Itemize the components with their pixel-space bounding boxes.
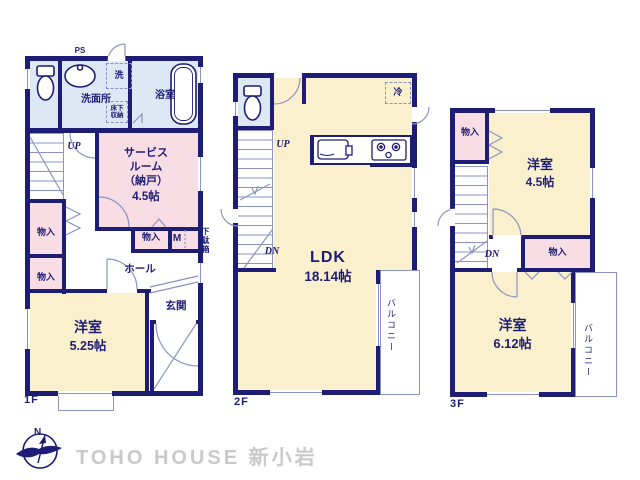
bathroom-label: 浴室 <box>137 90 193 103</box>
wall <box>455 160 489 164</box>
balcony-3f <box>575 272 617 397</box>
service-room-label: サービス ルーム （納戸） <box>100 147 192 188</box>
floor-3f-label: 3F <box>450 398 474 412</box>
service-room-size: 4.5帖 <box>100 190 192 204</box>
window <box>495 108 550 113</box>
bedroom-a-label: 洋室 <box>510 157 570 173</box>
compass-north-label: N <box>34 427 41 438</box>
door-gap <box>274 73 302 78</box>
dn-label: DN <box>478 249 506 262</box>
ldk-label: LDK <box>278 248 378 268</box>
bedroom-b-size: 6.12帖 <box>470 336 555 352</box>
stairs-1f <box>30 133 63 199</box>
entrance-door-arc <box>156 324 198 366</box>
sliding-door <box>376 284 380 346</box>
toilet-door-arc <box>274 78 300 104</box>
door-gap <box>412 107 417 122</box>
ldk-size: 18.14帖 <box>268 269 388 286</box>
kitchen-counter <box>310 135 412 165</box>
balcony-label-2f: バルコニー <box>386 280 395 370</box>
shoe-cabinet-label: 下駄箱 <box>201 219 209 261</box>
closet-b-3f-label: 物入 <box>530 247 585 258</box>
ps-label: PS <box>68 46 92 56</box>
window <box>270 390 322 395</box>
door-gap <box>156 320 196 324</box>
wall <box>30 254 66 258</box>
window <box>198 157 203 191</box>
refrigerator-box: 冷 <box>385 82 411 104</box>
up-label: UP <box>270 139 296 152</box>
wall <box>455 268 590 272</box>
washer-label: 洗 <box>114 70 123 81</box>
floor-1f-label: 1F <box>24 394 48 408</box>
wall <box>133 249 198 253</box>
closet-b-label: 物入 <box>30 272 62 283</box>
closet-a-label: 物入 <box>30 227 62 238</box>
window <box>590 168 595 198</box>
window <box>198 67 203 83</box>
wall <box>58 61 62 128</box>
wall <box>62 199 66 294</box>
entrance-step <box>58 396 114 411</box>
underfloor-storage-label: 床下 収納 <box>111 105 124 120</box>
closet-fold-door <box>66 221 80 235</box>
wall <box>95 133 99 231</box>
door-gap <box>107 289 137 293</box>
door-gap <box>492 268 517 272</box>
washer-box: 洗 <box>106 63 132 89</box>
door-gap <box>450 209 455 226</box>
closet-a-3f-label: 物入 <box>455 127 485 138</box>
balcony-label-3f: バルコニー <box>583 305 592 395</box>
brand-text: TOHO HOUSE 新小岩 <box>76 441 318 470</box>
closet-fold-door <box>66 207 80 221</box>
m-label: M <box>171 233 183 246</box>
wall <box>270 78 274 130</box>
wall <box>150 320 154 391</box>
washroom-label: 洗面所 <box>68 94 124 107</box>
compass-bird-shape <box>16 446 62 458</box>
floor-1f: 洗 床下 収納 PS 洗面所 浴室 UP サービス ルーム （納戸） 4.5帖 … <box>25 56 203 396</box>
up-label: UP <box>61 141 87 154</box>
entrance-step-line <box>150 276 198 287</box>
window <box>25 309 30 349</box>
window <box>25 69 30 89</box>
refrigerator-label: 冷 <box>393 87 402 98</box>
wall <box>30 128 198 133</box>
door-gap <box>108 56 125 61</box>
window <box>233 102 238 116</box>
wall <box>30 199 62 203</box>
bedroom-1f-label: 洋室 <box>48 319 128 337</box>
porch-diagonal <box>154 324 196 389</box>
bedroom-a-3f <box>489 113 590 235</box>
bedroom-1f-size: 5.25帖 <box>38 339 138 355</box>
compass-icon: N <box>14 422 66 476</box>
door-gap <box>233 209 238 223</box>
window <box>198 263 203 283</box>
entrance-step-line <box>150 282 198 293</box>
wall <box>302 78 306 104</box>
wall <box>95 227 198 231</box>
entrance-label: 玄関 <box>156 300 196 313</box>
window <box>487 392 539 397</box>
closet-c-label: 物入 <box>133 232 169 243</box>
wall <box>238 126 274 130</box>
wall <box>485 113 489 164</box>
sliding-door <box>571 303 575 348</box>
bedroom-a-size: 4.5帖 <box>505 175 575 190</box>
window <box>412 168 417 198</box>
hall-label: ホール <box>116 263 164 276</box>
floorplan-canvas: 洗 床下 収納 PS 洗面所 浴室 UP サービス ルーム （納戸） 4.5帖 … <box>0 0 640 480</box>
floor-2f: 冷 UP DN LDK 18.14帖 バルコニー 2F <box>233 73 417 395</box>
bedroom-b-label: 洋室 <box>480 317 545 335</box>
floor-2f-label: 2F <box>234 396 258 410</box>
door-gap <box>493 235 521 239</box>
wall <box>145 289 149 391</box>
window <box>412 212 417 227</box>
floor-3f: 物入 洋室 4.5帖 DN 物入 洋室 6.12帖 バルコニー 3F <box>450 108 595 397</box>
toilet-room-2f <box>238 78 270 128</box>
